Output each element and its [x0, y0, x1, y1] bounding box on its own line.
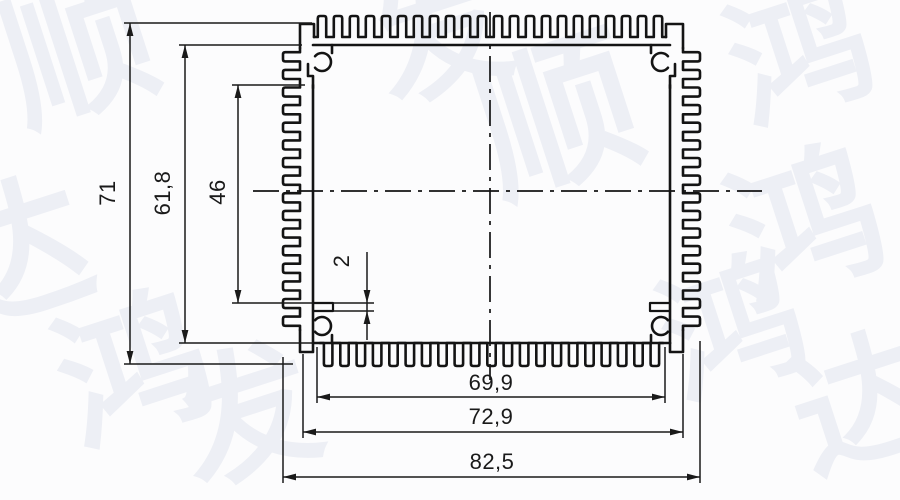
dim-label-69-9: 69,9 — [469, 370, 514, 395]
dim-label-72-9: 72,9 — [469, 404, 514, 429]
dim-label-46: 46 — [205, 179, 230, 204]
dim-label-61-8: 61,8 — [150, 171, 175, 216]
dimension-arrowhead — [687, 474, 700, 481]
left-fins-path — [283, 48, 300, 330]
dimension-arrowhead — [364, 290, 371, 303]
dimension-arrowhead — [235, 290, 242, 303]
dimension-arrowhead — [182, 45, 189, 58]
screw-boss-top-right — [652, 53, 668, 71]
dimension-arrowhead — [317, 394, 330, 401]
dimension-arrowhead — [235, 85, 242, 98]
bottom-fins-path — [320, 343, 663, 366]
screw-boss-top-left — [315, 53, 331, 71]
watermark-character: 鸿 — [709, 0, 891, 150]
dim-label-82-5: 82,5 — [470, 449, 515, 474]
wall-step-tl — [308, 64, 313, 88]
dimension-arrowhead — [670, 429, 683, 436]
dimension-arrowhead — [652, 394, 665, 401]
screw-boss-bottom-left — [315, 317, 331, 335]
dim-label-2: 2 — [329, 255, 354, 268]
dimension-arrowhead — [364, 311, 371, 324]
technical-drawing-svg: 顺达发顺鸿鸿鸿鸿发达 — [0, 0, 900, 500]
wall-step-tr — [670, 64, 675, 88]
watermark-layer: 顺达发顺鸿鸿鸿鸿发达 — [0, 0, 900, 500]
pcb-ledge-left — [313, 303, 333, 311]
dim-label-71: 71 — [95, 180, 120, 205]
drawing-canvas: 顺达发顺鸿鸿鸿鸿发达 — [0, 0, 900, 500]
left-foot — [300, 330, 313, 352]
